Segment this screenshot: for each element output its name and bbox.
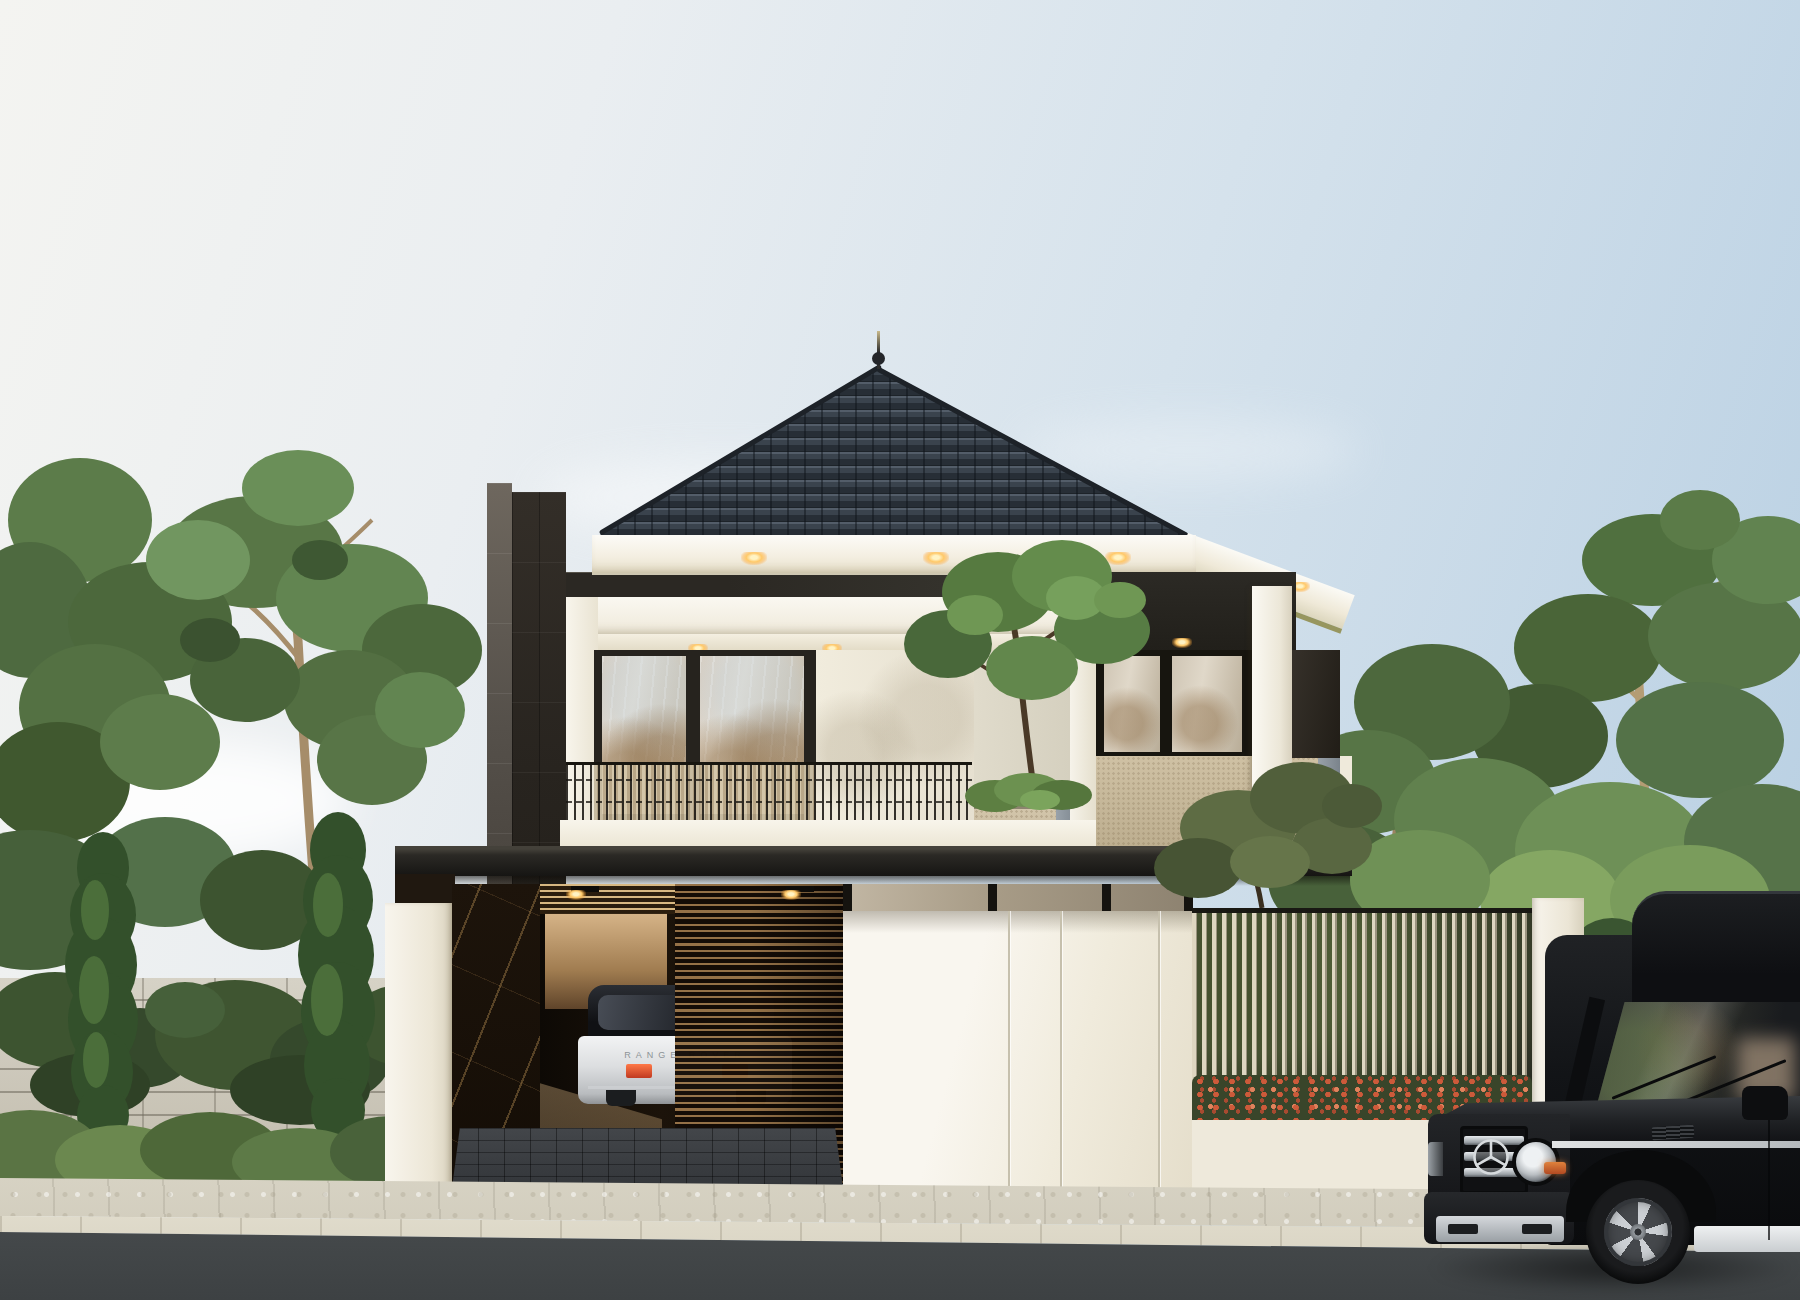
planter-ferns (965, 773, 1092, 812)
panel-seam (1008, 911, 1010, 1193)
bumper-skid-plate (1436, 1216, 1564, 1242)
side-chrome-trim (1552, 1141, 1800, 1148)
balcony-tree (904, 540, 1150, 806)
panel-seam (1158, 911, 1160, 1193)
gate-olive-tree (1154, 762, 1382, 908)
g-class-roof (1632, 891, 1800, 1009)
wheel-hub (1630, 1224, 1646, 1240)
mercedes-star-icon (1469, 1135, 1513, 1179)
side-mirror (1742, 1086, 1788, 1120)
fence-left-pier (385, 903, 452, 1193)
door-seam (1768, 1108, 1770, 1240)
rocker-sill (1694, 1226, 1800, 1252)
panel-seam (1060, 911, 1062, 1193)
headlight-left-sliver (1428, 1142, 1443, 1176)
fence-panel-shadow (843, 911, 1192, 933)
side-marker-light (1544, 1162, 1566, 1174)
architectural-render-scene: RANGE ROVER (0, 0, 1800, 1300)
fence-white-panels (843, 911, 1192, 1193)
